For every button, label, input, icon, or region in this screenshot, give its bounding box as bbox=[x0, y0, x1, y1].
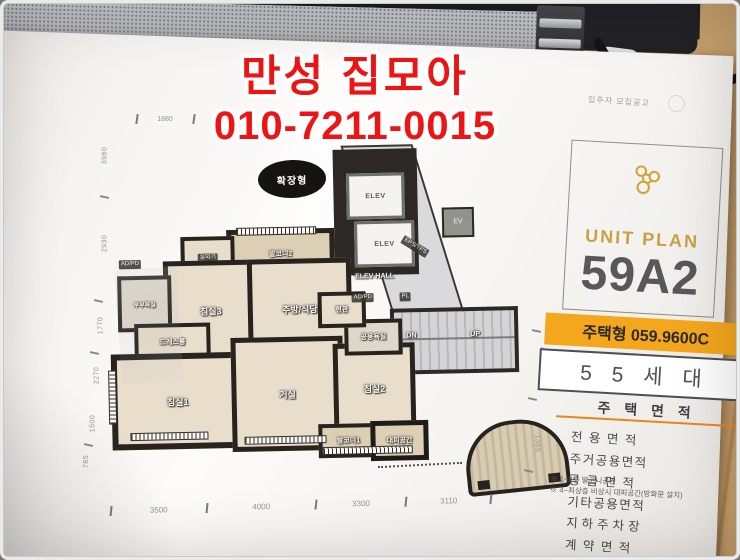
elev-hall-label: ELEV HALL bbox=[355, 273, 394, 281]
stairs-down-label: DN bbox=[406, 332, 416, 339]
room-label: 주방/식당 bbox=[282, 302, 318, 316]
room-label: 발코니1 bbox=[337, 435, 360, 445]
foil-glare bbox=[114, 266, 184, 385]
unit-plan-panel: UNIT PLAN 59A2 주택형 059.9600C 5 5 세 대 주 택… bbox=[534, 133, 740, 560]
room-label: 침실1 bbox=[167, 394, 189, 407]
faint-logo-circle bbox=[668, 95, 685, 112]
photo-of-floorplan-flyer: 입주자 모집공고 1880 확장형 ELEV ELEV EV EPS/TPS E… bbox=[0, 0, 740, 560]
dim-left: 3960 bbox=[101, 147, 108, 165]
window bbox=[244, 435, 326, 445]
overlay-phone-number: 010-7211-0015 bbox=[120, 104, 590, 149]
dim-left: 785 bbox=[83, 455, 90, 468]
window bbox=[108, 370, 117, 424]
dim-left: 1500 bbox=[89, 415, 96, 433]
pl-duct-label: PL bbox=[399, 292, 411, 301]
area-row-value: 59 bbox=[736, 435, 740, 448]
dim-left: 2270 bbox=[93, 367, 100, 385]
overlay-agency-name: 만성 집모아 bbox=[120, 42, 590, 104]
room-evacuation-space: 대피공간 bbox=[370, 420, 429, 461]
elevator-1: ELEV bbox=[346, 172, 405, 219]
brand-logo-icon bbox=[627, 162, 667, 202]
dim-left: 1770 bbox=[97, 317, 104, 335]
dim-left: 2930 bbox=[101, 235, 108, 253]
stairs-up-label: UP bbox=[470, 331, 480, 338]
ev-label: EV bbox=[451, 217, 465, 227]
window bbox=[130, 432, 208, 442]
area-row-label: 전 용 면 적 bbox=[571, 430, 639, 448]
unit-code: 59A2 bbox=[564, 245, 717, 308]
room-label: 대피공간 bbox=[387, 435, 413, 446]
room-label: 공용욕실 bbox=[360, 332, 386, 343]
room-label: 침실2 bbox=[364, 381, 386, 394]
room-label: 현관 bbox=[335, 305, 348, 315]
dim-label: 3110 bbox=[407, 495, 491, 507]
key-plan-mark bbox=[477, 480, 490, 490]
room-label: 거실 bbox=[279, 387, 296, 400]
households-count: 5 5 세 대 bbox=[538, 348, 740, 402]
ev-shaft: EV bbox=[442, 207, 475, 238]
ad-pd-duct-label-2: AD/PD bbox=[352, 293, 375, 302]
unit-plan-box: UNIT PLAN 59A2 bbox=[562, 140, 723, 318]
window bbox=[236, 226, 316, 236]
area-table: 전 용 면 적 59 주거공용면적 공 급 면 적 기타공용면적 지하주차장 계… bbox=[550, 425, 740, 560]
room-label: 발코니2 bbox=[269, 249, 292, 259]
room-label: 침실3 bbox=[200, 304, 222, 317]
